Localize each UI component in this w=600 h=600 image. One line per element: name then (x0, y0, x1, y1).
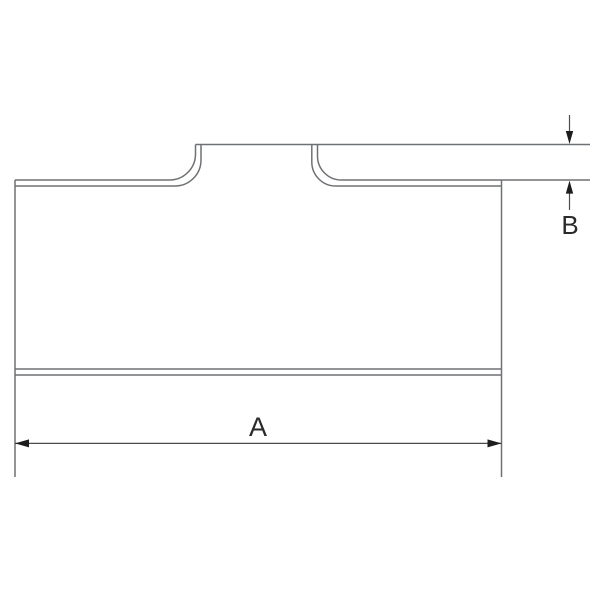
dimension-a: A (15, 412, 502, 447)
pipe-tee-technical-drawing: A B (0, 0, 600, 600)
dim-b-label: B (561, 210, 578, 240)
drawing-canvas: A B (0, 0, 600, 600)
dim-a-label: A (249, 412, 267, 442)
dim-b-arrowhead-up-icon (566, 181, 573, 194)
tee-fitting-outline (15, 145, 590, 478)
dim-b-arrowhead-down-icon (566, 131, 573, 144)
run-top-outer-left-line (15, 145, 196, 181)
dim-a-arrowhead-left-icon (15, 439, 29, 447)
run-top-outer-right-line (318, 145, 591, 181)
dim-a-arrowhead-right-icon (488, 439, 502, 447)
dimension-b: B (561, 115, 578, 240)
